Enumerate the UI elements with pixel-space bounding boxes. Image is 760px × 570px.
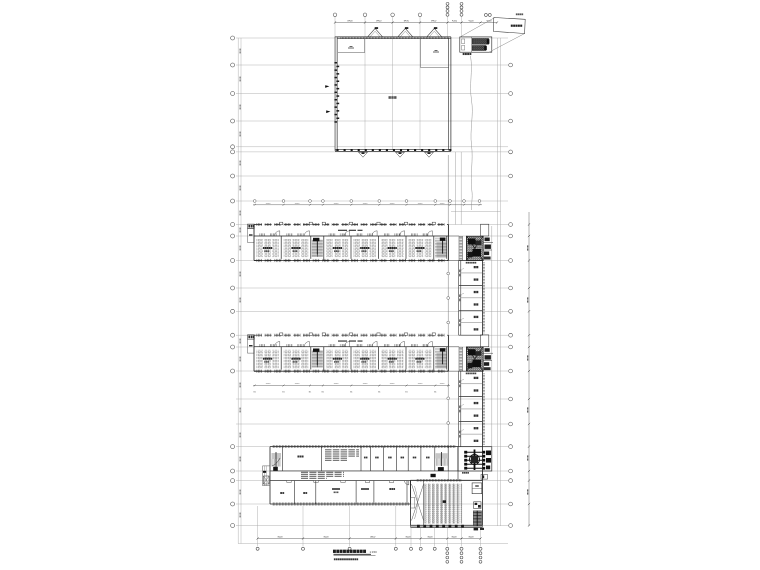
- svg-text:8400: 8400: [431, 20, 437, 22]
- svg-text:9000: 9000: [370, 536, 376, 538]
- svg-text:8400: 8400: [347, 20, 353, 22]
- svg-text:9000: 9000: [451, 536, 457, 538]
- svg-text:4200: 4200: [452, 20, 458, 22]
- svg-text:9000: 9000: [405, 536, 411, 538]
- svg-text:9000: 9000: [323, 536, 329, 538]
- svg-text:9000: 9000: [277, 536, 283, 538]
- svg-text:9000: 9000: [468, 536, 474, 538]
- svg-text:9000: 9000: [427, 536, 433, 538]
- svg-text:1:150: 1:150: [370, 550, 378, 554]
- svg-text:8400: 8400: [404, 20, 410, 22]
- svg-text:8400: 8400: [376, 20, 382, 22]
- svg-text:4200: 4200: [468, 20, 474, 22]
